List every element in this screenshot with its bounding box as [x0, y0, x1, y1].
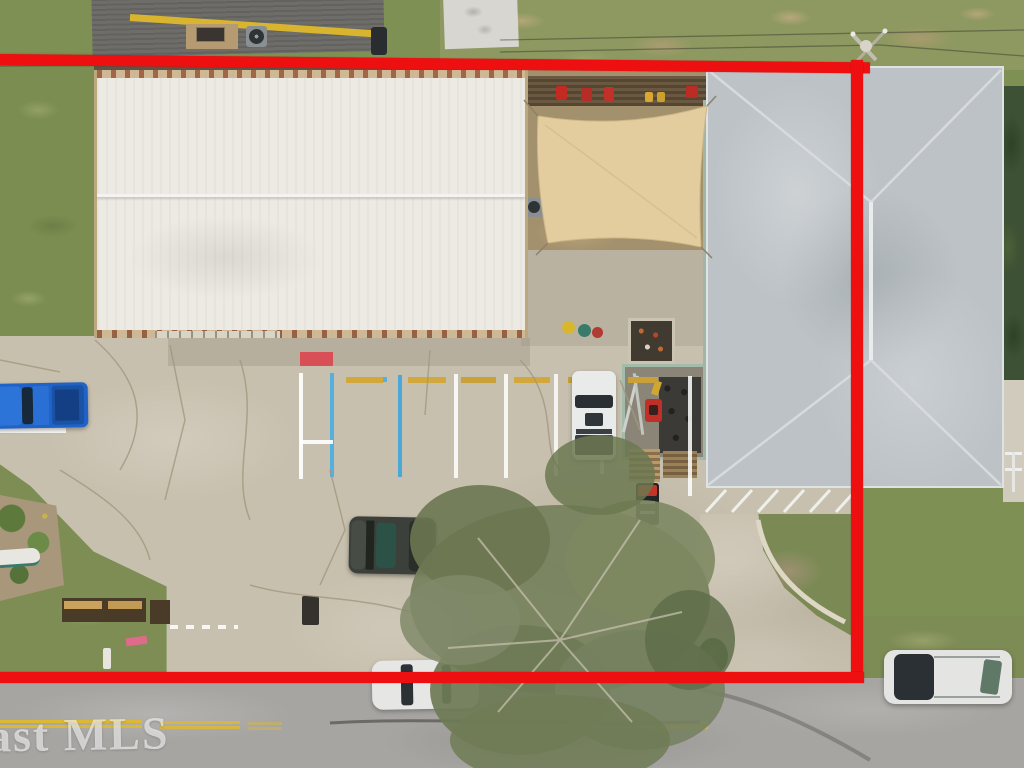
angled-stripes — [706, 490, 856, 512]
boundary-line-right — [851, 60, 863, 682]
aerial-photo: ast MLS — [0, 0, 1024, 768]
driveway-curb — [758, 520, 845, 622]
oak-tree-canopy — [400, 435, 735, 768]
scene-overlay — [0, 0, 1024, 768]
mls-watermark: ast MLS — [0, 706, 170, 762]
boundary-line-bottom — [0, 672, 864, 683]
shade-sail — [524, 96, 716, 258]
tire-marks — [700, 690, 870, 760]
